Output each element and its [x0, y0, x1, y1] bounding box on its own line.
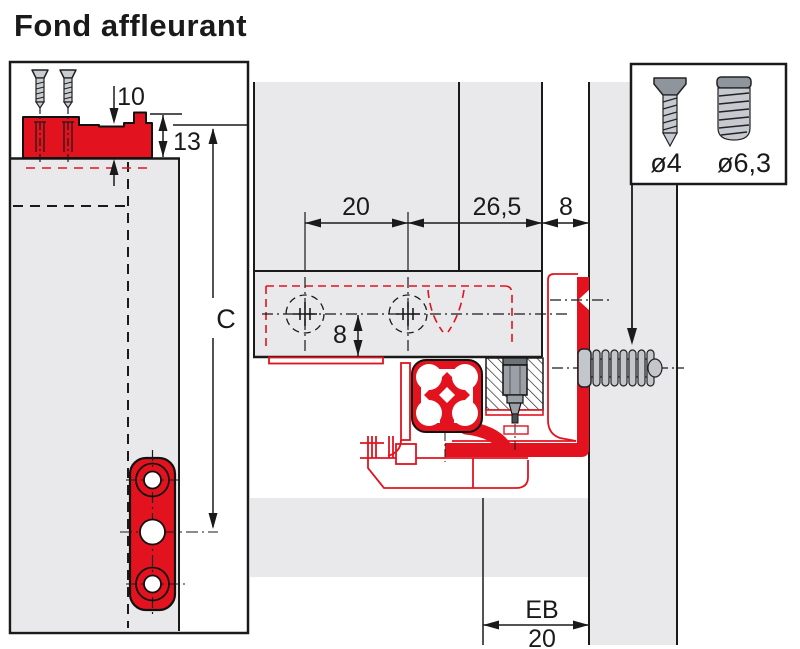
left-detail-view: 10 13 C — [10, 62, 248, 633]
screw-hole — [144, 472, 161, 489]
diagram-page: Fond affleurant — [0, 0, 800, 649]
dim-label-eb-20: 20 — [528, 625, 556, 649]
technical-diagram: 20 26,5 8 8 — [0, 0, 800, 649]
dim-label-13: 13 — [173, 128, 201, 156]
runner-edge-strip — [269, 358, 383, 364]
roller — [416, 364, 442, 390]
roller — [416, 400, 442, 426]
runner-profile — [412, 360, 482, 432]
euro-screw-icon — [717, 77, 751, 140]
screw-label-large: ø6,3 — [717, 148, 771, 178]
runner-vertical-web — [401, 363, 410, 440]
top-panel-right — [459, 82, 542, 271]
dim-label-26-5: 26,5 — [473, 193, 522, 221]
screw-hole — [144, 576, 161, 593]
dim-label-8-gap: 8 — [559, 193, 573, 221]
screw-label-small: ø4 — [650, 148, 682, 178]
top-panel-left — [254, 82, 459, 271]
dim-label-10: 10 — [117, 83, 145, 111]
screw-legend-box: ø4 ø6,3 — [631, 64, 786, 184]
dim-label-8-drill: 8 — [333, 321, 347, 349]
dim-label-c: C — [216, 304, 236, 334]
roller — [452, 400, 478, 426]
bottom-panel-band — [250, 498, 589, 577]
dim-label-eb: EB — [525, 596, 558, 624]
roller — [452, 364, 478, 390]
dim-label-20: 20 — [342, 193, 370, 221]
main-view: 20 26,5 8 8 — [250, 82, 684, 649]
screw-hole — [140, 520, 165, 545]
